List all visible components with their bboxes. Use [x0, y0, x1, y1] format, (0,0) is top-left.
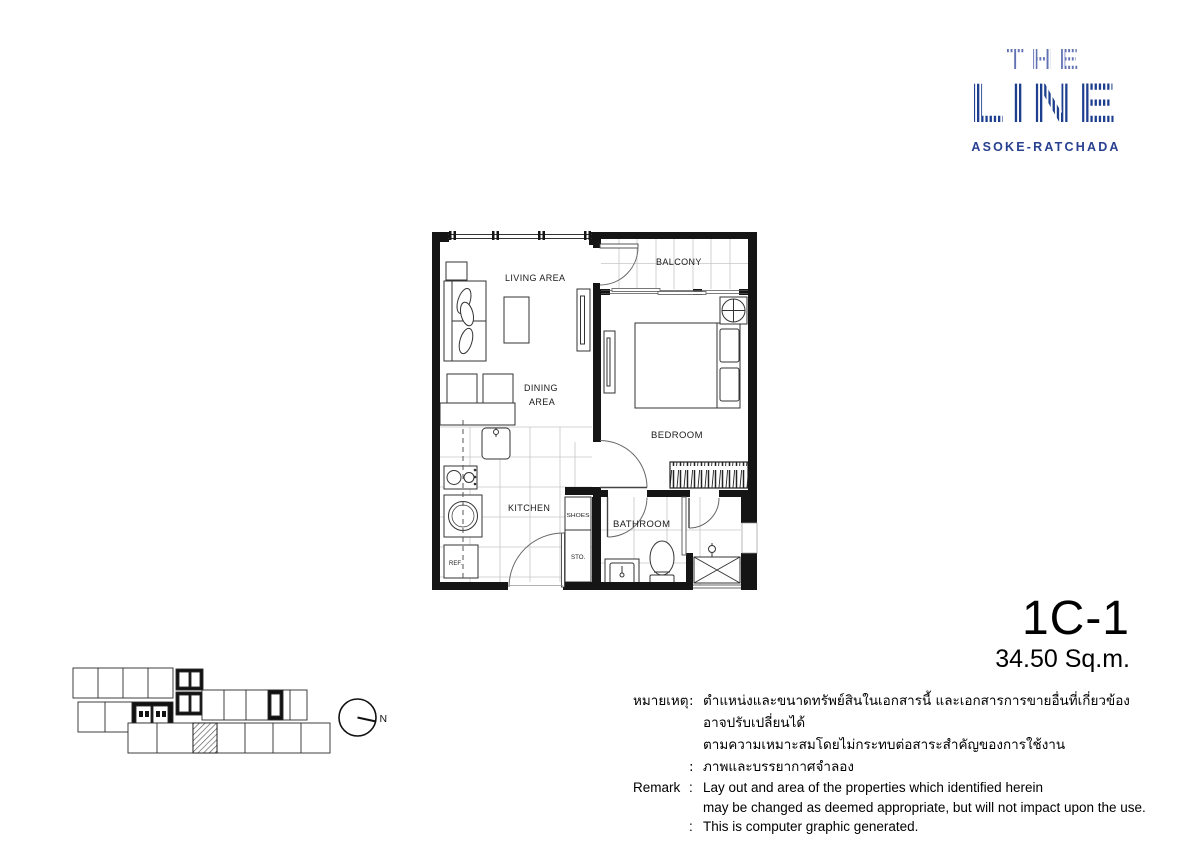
dining-counter	[440, 403, 515, 425]
note-text: This is computer graphic generated.	[703, 817, 1153, 837]
keyplan-stair-shafts	[176, 669, 203, 715]
room-label-bedroom: BEDROOM	[651, 430, 703, 441]
note-colon: :	[687, 690, 703, 734]
room-label-bathroom: BATHROOM	[613, 519, 670, 530]
dining-stools	[447, 374, 513, 403]
shower-partition	[682, 497, 686, 555]
doors	[508, 244, 719, 587]
unit-code: 1C-1	[880, 595, 1130, 643]
shoes-label: SHOES	[567, 513, 590, 519]
note-colon	[687, 734, 703, 756]
note-colon	[687, 798, 703, 818]
note-text: ตามความเหมาะสมโดยไม่กระทบต่อสาระสำคัญของ…	[703, 734, 1153, 756]
note-row: : This is computer graphic generated.	[633, 817, 1153, 837]
tv-panel-bedroom	[604, 331, 615, 393]
keyplan-right-wing	[202, 690, 307, 720]
note-label	[633, 798, 687, 818]
note-text: may be changed as deemed appropriate, bu…	[703, 798, 1153, 818]
sofa	[444, 281, 486, 361]
side-table	[446, 262, 467, 280]
kitchen-sink	[482, 428, 510, 459]
ref-label: REF.	[449, 561, 462, 567]
note-colon: :	[687, 817, 703, 837]
stove	[444, 466, 477, 489]
note-row: ตามความเหมาะสมโดยไม่กระทบต่อสาระสำคัญของ…	[633, 734, 1153, 756]
key-plan	[70, 660, 335, 760]
shoes-cabinet: SHOES	[565, 497, 591, 530]
storage-cabinet: STO.	[565, 530, 591, 582]
note-colon: :	[687, 756, 703, 778]
refrigerator: REF.	[444, 545, 478, 578]
note-text: ภาพและบรรยากาศจำลอง	[703, 756, 1153, 778]
note-row: may be changed as deemed appropriate, bu…	[633, 798, 1153, 818]
bed	[635, 323, 740, 408]
wardrobe	[670, 462, 748, 488]
bathroom-door	[608, 497, 648, 537]
entrance-door	[508, 533, 565, 587]
note-row: หมายเหตุ : ตำแหน่งและขนาดทรัพย์สินในเอกส…	[633, 690, 1153, 734]
floor-plan: REF. SHOES STO.	[430, 226, 760, 596]
room-label-dining1: DINING	[524, 383, 558, 393]
compass: N	[333, 693, 391, 743]
note-label: Remark	[633, 778, 687, 798]
keyplan-left-lower-block	[78, 702, 132, 732]
logo-subtitle: ASOKE-RATCHADA	[971, 140, 1120, 154]
note-row: Remark : Lay out and area of the propert…	[633, 778, 1153, 798]
compass-north-label: N	[380, 713, 388, 725]
note-label	[633, 734, 687, 756]
note-row: : ภาพและบรรยากาศจำลอง	[633, 756, 1153, 778]
logo-line: LINE	[970, 71, 1122, 134]
room-label-dining2: AREA	[529, 397, 555, 407]
shower-tray	[692, 557, 748, 588]
tv-console-living	[577, 289, 590, 351]
room-label-living: LIVING AREA	[505, 273, 565, 283]
keyplan-bottom-row	[128, 723, 330, 753]
unit-info: 1C-1 34.50 Sq.m.	[880, 595, 1130, 672]
room-label-balcony: BALCONY	[656, 257, 702, 267]
room-label-kitchen: KITCHEN	[508, 503, 550, 513]
balcony-sliding-door	[601, 289, 748, 295]
note-text: ตำแหน่งและขนาดทรัพย์สินในเอกสารนี้ และเอ…	[703, 690, 1153, 734]
keyplan-top-left-strip	[73, 668, 173, 698]
shower-door	[689, 498, 719, 528]
duct-notch	[742, 523, 757, 553]
ac-unit-symbol	[720, 297, 747, 324]
note-label	[633, 756, 687, 778]
toilet	[650, 541, 674, 588]
unit-area: 34.50 Sq.m.	[880, 647, 1130, 672]
keyplan-highlighted-unit	[193, 723, 217, 753]
brand-logo: THE LINE ASOKE-RATCHADA	[935, 38, 1150, 158]
bedroom-door	[600, 441, 647, 488]
living-window	[448, 231, 592, 240]
note-colon: :	[687, 778, 703, 798]
coffee-table	[504, 297, 529, 343]
shower-valve	[709, 543, 716, 557]
note-text: Lay out and area of the properties which…	[703, 778, 1153, 798]
note-label	[633, 817, 687, 837]
note-label: หมายเหตุ	[633, 690, 687, 734]
sto-label: STO.	[571, 554, 586, 561]
notes-block: หมายเหตุ : ตำแหน่งและขนาดทรัพย์สินในเอกส…	[633, 690, 1153, 837]
